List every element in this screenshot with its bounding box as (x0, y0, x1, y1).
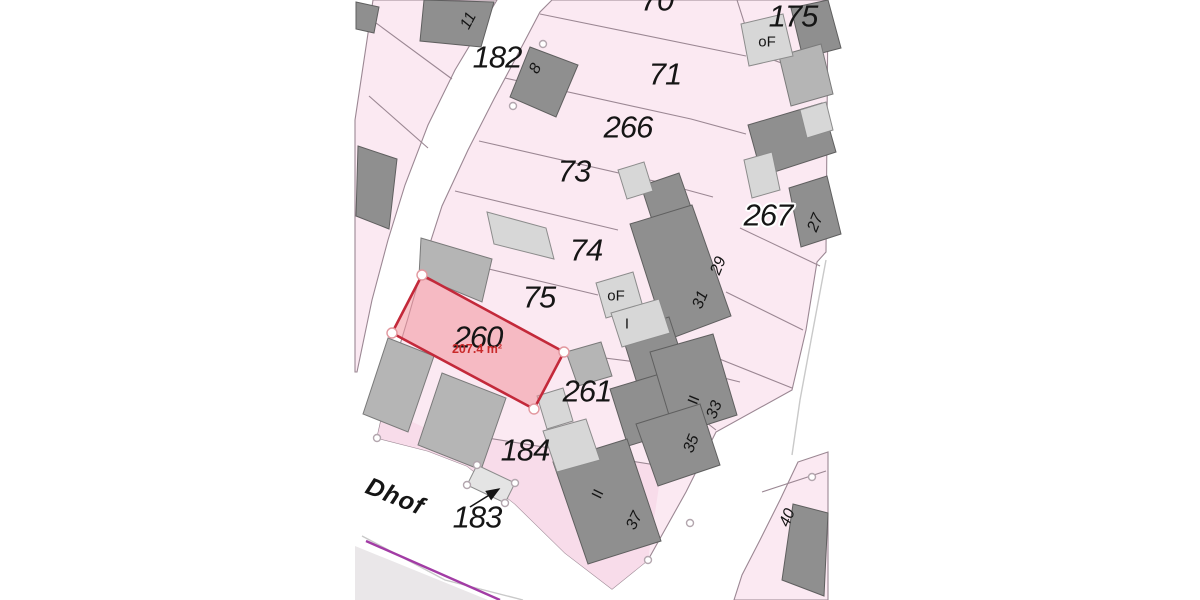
highlight-area-label: 207.4 m² (452, 343, 502, 356)
verge-area (355, 546, 488, 600)
vertex-marker (474, 462, 481, 469)
cadastral-map-canvas (0, 0, 1200, 600)
cadastral-map-viewport: 182 70 175 oF 71 8 11 266 73 267 27 74 2… (0, 0, 1200, 600)
highlight-vertex-marker (387, 328, 397, 338)
vertex-marker (374, 435, 381, 442)
parcel-label-267: 267 (744, 200, 793, 231)
vertex-marker (645, 557, 652, 564)
vertex-marker (510, 103, 517, 110)
parcel-label-73: 73 (558, 156, 590, 187)
vertex-marker (809, 474, 816, 481)
vertex-marker (502, 500, 509, 507)
parcel-label-266: 266 (604, 112, 653, 143)
highlight-vertex-marker (559, 347, 569, 357)
parcel-label-261: 261 (563, 376, 612, 407)
highlight-vertex-marker (417, 270, 427, 280)
building (356, 146, 397, 229)
storey-label-of-top: oF (758, 35, 776, 50)
storey-label-of-mid: oF (607, 289, 625, 304)
highlight-vertex-marker (529, 404, 539, 414)
vertex-marker (687, 520, 694, 527)
parcel-label-182: 182 (473, 42, 522, 73)
storey-label-i: I (625, 317, 629, 332)
parcel-label-70: 70 (641, 0, 673, 16)
parcel-label-175: 175 (769, 1, 818, 32)
parcel-label-74: 74 (570, 235, 602, 266)
vertex-marker (540, 41, 547, 48)
parcel-label-183: 183 (453, 502, 502, 533)
vertex-marker (512, 480, 519, 487)
vertex-marker (464, 482, 471, 489)
parcel-label-75: 75 (523, 282, 555, 313)
parcel-label-184: 184 (501, 435, 550, 466)
parcel-label-71: 71 (649, 59, 681, 90)
